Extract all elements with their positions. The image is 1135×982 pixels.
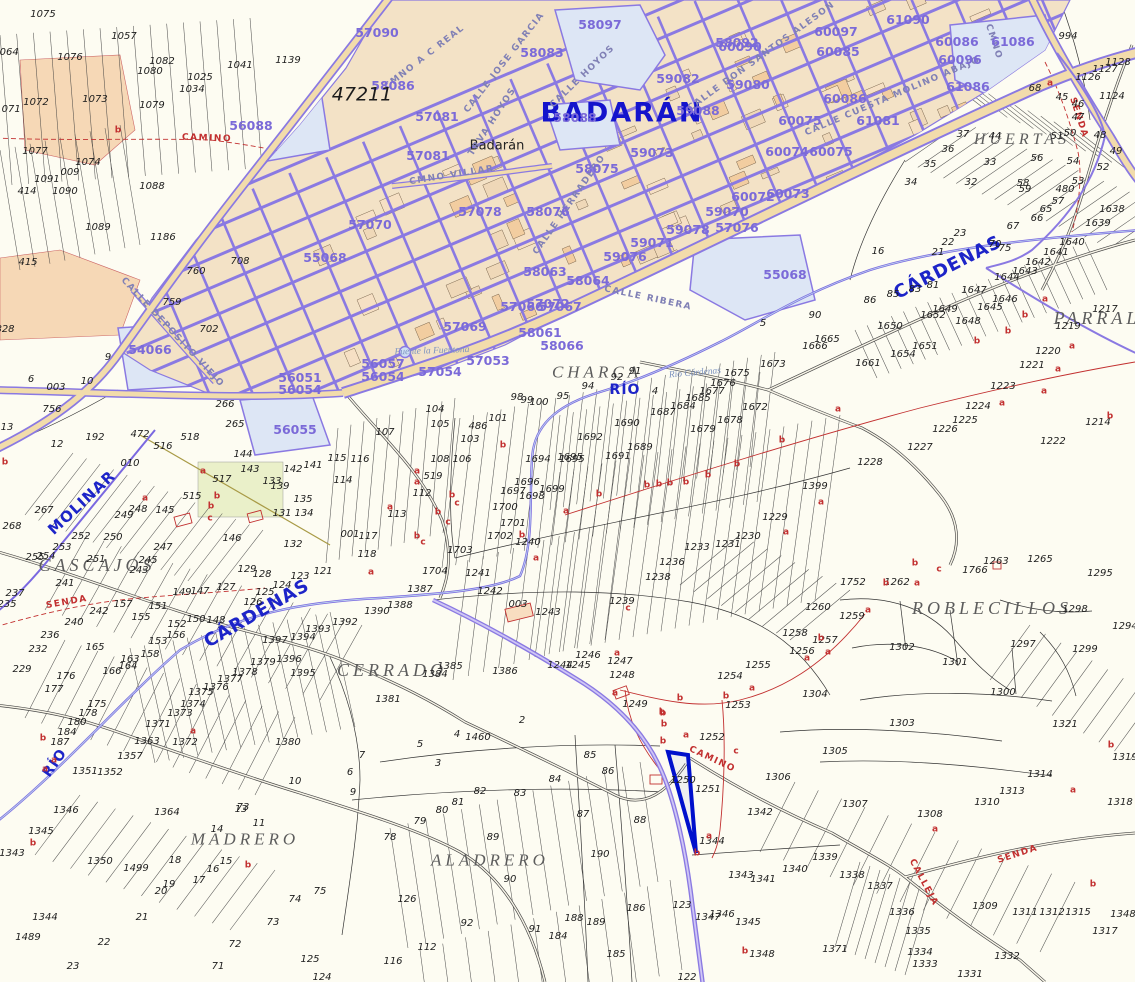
- cadastral-map[interactable]: BADARÁNBadaránCHARCAHUERTASPARRALCASCAJO…: [0, 0, 1135, 982]
- map-canvas: [0, 0, 1135, 982]
- fountain-icon: [400, 347, 411, 358]
